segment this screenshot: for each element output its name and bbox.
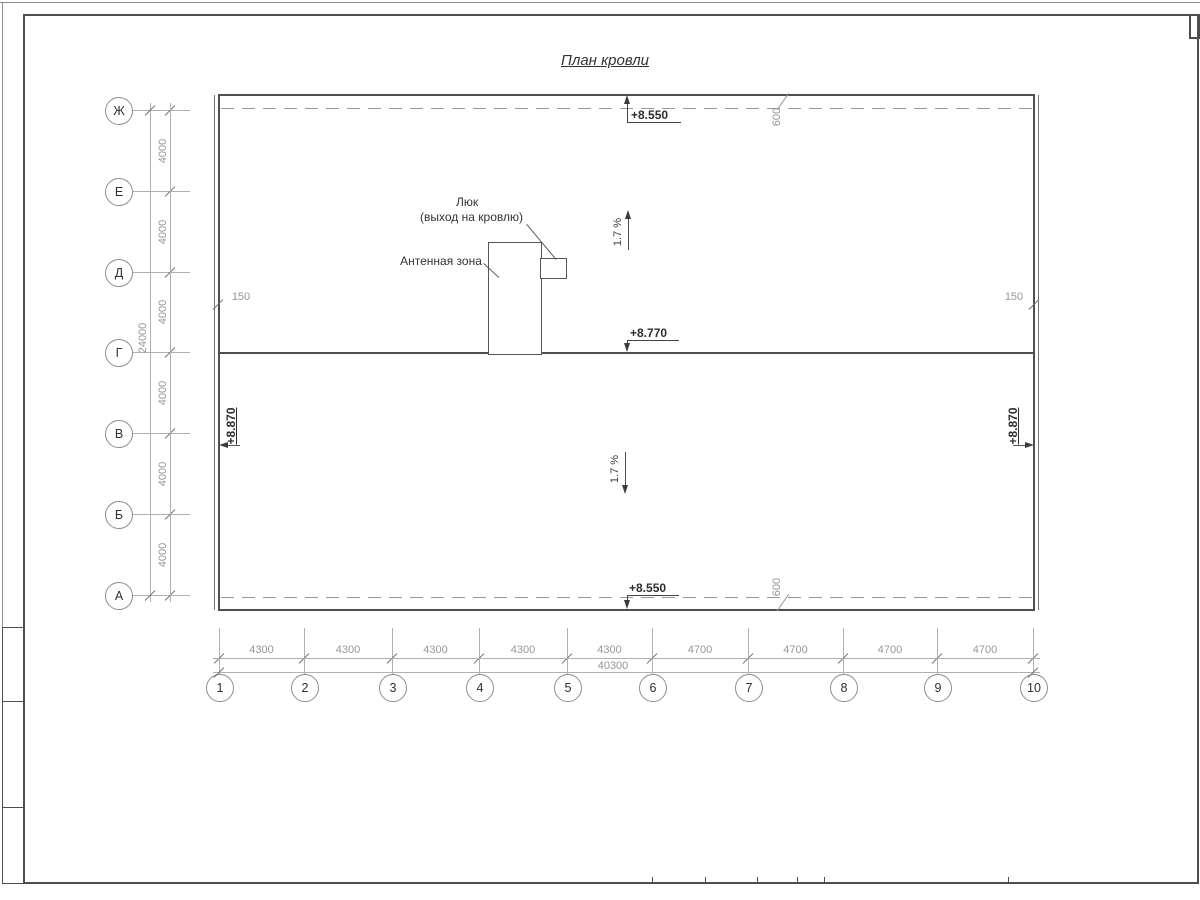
row-span-dimension: 4000	[157, 295, 169, 329]
hatch-label-line2: (выход на кровлю)	[415, 210, 528, 224]
col-span-dimension: 4300	[242, 644, 282, 656]
axis-bubble-row: Ж	[105, 97, 133, 125]
edge-offset-left: 150	[227, 291, 255, 303]
axis-bubble-col: 4	[466, 674, 494, 702]
col-witness-line	[652, 628, 653, 674]
col-span-dimension: 4300	[590, 644, 630, 656]
row-dim-line-segments	[170, 103, 171, 602]
axis-bubble-row: Г	[105, 339, 133, 367]
elevation-right-arrow	[1025, 442, 1034, 448]
elevation-top: +8.550	[631, 108, 668, 122]
col-span-dimension: 4700	[680, 644, 720, 656]
row-axis-line	[131, 272, 190, 273]
frame-fold-tick	[797, 877, 798, 884]
row-span-dimension: 4000	[157, 376, 169, 410]
slope-arrow-up-head	[625, 210, 631, 219]
hatch-label-line1: Люк	[439, 195, 495, 209]
axis-bubble-col: 5	[554, 674, 582, 702]
slope-arrow-down-head	[622, 485, 628, 494]
slope-arrow-down-line	[625, 452, 626, 488]
antenna-zone-rect	[488, 242, 542, 355]
elevation-bottom: +8.550	[629, 581, 666, 595]
row-span-dimension: 4000	[157, 538, 169, 572]
row-dim-line-total	[150, 103, 151, 602]
col-witness-line	[937, 628, 938, 674]
axis-bubble-col: 2	[291, 674, 319, 702]
col-dim-line-total	[213, 672, 1040, 673]
roof-hatch-rect	[540, 258, 567, 279]
roof-edge-line-left	[214, 95, 215, 610]
antenna-label: Антенная зона	[397, 254, 485, 268]
col-dim-line-segments	[213, 658, 1040, 659]
frame-fold-tick	[824, 877, 825, 884]
row-axis-line	[131, 433, 190, 434]
col-span-dimension: 4700	[870, 644, 910, 656]
row-span-dimension: 4000	[157, 457, 169, 491]
row-axis-line	[131, 191, 190, 192]
axis-bubble-row: А	[105, 582, 133, 610]
elevation-top-arrow	[624, 95, 630, 104]
col-witness-line	[219, 628, 220, 674]
col-witness-line	[479, 628, 480, 674]
axis-bubble-col: 9	[924, 674, 952, 702]
elevation-right: +8.870	[1006, 403, 1020, 449]
col-span-dimension: 4700	[965, 644, 1005, 656]
elevation-top-shelf	[627, 122, 681, 123]
elevation-bottom-arrow	[624, 600, 630, 609]
row-span-dimension: 4000	[157, 134, 169, 168]
axis-bubble-row: Д	[105, 259, 133, 287]
col-span-dimension: 4300	[503, 644, 543, 656]
slope-label-upper: 1.7 %	[612, 214, 624, 250]
slope-arrow-up-line	[628, 214, 629, 250]
roof-edge-line-right	[1038, 95, 1039, 610]
row-axis-line	[131, 110, 190, 111]
row-span-dimension: 4000	[157, 215, 169, 249]
axis-bubble-col: 10	[1020, 674, 1048, 702]
frame-fold-tick	[705, 877, 706, 884]
elevation-bottom-shelf	[627, 595, 679, 596]
drawing-sheet: План кровли Люк (выход на кровлю) Антенн…	[0, 0, 1200, 900]
row-axis-line	[131, 595, 190, 596]
col-witness-line	[567, 628, 568, 674]
frame-fold-tick	[1008, 877, 1009, 884]
col-span-dimension: 4300	[416, 644, 456, 656]
axis-bubble-row: В	[105, 420, 133, 448]
axis-bubble-col: 8	[830, 674, 858, 702]
row-axis-line	[131, 514, 190, 515]
frame-corner-box	[1189, 14, 1200, 39]
slope-label-lower: 1.7 %	[609, 451, 621, 487]
col-witness-line	[1033, 628, 1034, 674]
col-witness-line	[304, 628, 305, 674]
parapet-offset-bottom: 600	[771, 574, 783, 600]
edge-offset-right: 150	[1000, 291, 1028, 303]
elevation-ridge-shelf	[627, 340, 679, 341]
axis-bubble-row: Б	[105, 501, 133, 529]
elevation-ridge-arrow	[624, 343, 630, 352]
page-title: План кровли	[540, 52, 670, 69]
elevation-ridge: +8.770	[630, 326, 667, 340]
margin-box	[2, 701, 24, 808]
frame-fold-tick	[652, 877, 653, 884]
col-witness-line	[392, 628, 393, 674]
elevation-left-arrow	[219, 442, 228, 448]
axis-bubble-row: Е	[105, 178, 133, 206]
axis-bubble-col: 7	[735, 674, 763, 702]
frame-fold-tick	[757, 877, 758, 884]
axis-bubble-col: 3	[379, 674, 407, 702]
col-witness-line	[843, 628, 844, 674]
sheet-outer-top-edge	[0, 2, 1200, 3]
axis-bubble-col: 1	[206, 674, 234, 702]
roof-ridge-line	[220, 352, 1034, 354]
row-total-dimension: 24000	[137, 316, 149, 360]
col-span-dimension: 4300	[328, 644, 368, 656]
col-total-dimension: 40300	[588, 660, 638, 672]
margin-box	[2, 627, 24, 702]
axis-bubble-col: 6	[639, 674, 667, 702]
col-witness-line	[748, 628, 749, 674]
margin-box	[2, 807, 24, 884]
col-span-dimension: 4700	[776, 644, 816, 656]
